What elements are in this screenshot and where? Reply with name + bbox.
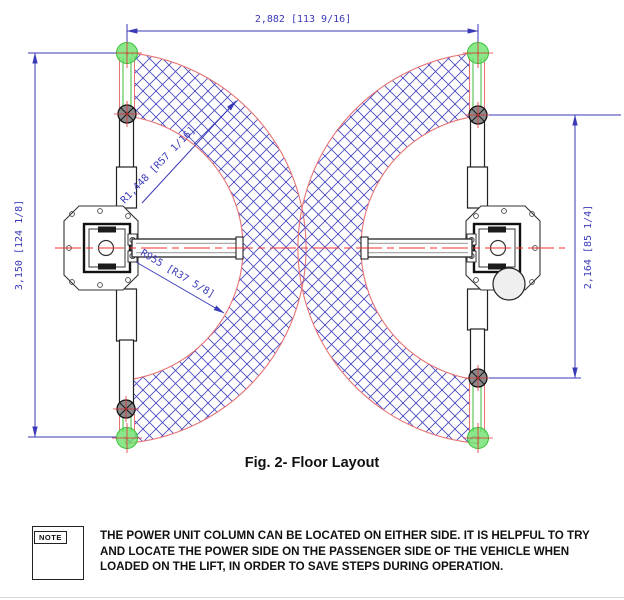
note-section: NOTE THE POWER UNIT COLUMN CAN BE LOCATE… — [32, 526, 607, 580]
dimension-left-height-label: 3,150 [124 1/8] — [14, 200, 25, 290]
right-column-assembly — [466, 206, 540, 300]
dimension-top-width — [127, 24, 478, 42]
page-divider — [0, 597, 624, 598]
power-unit — [493, 268, 525, 300]
dimension-top-width-label: 2,882 [113 9/16] — [255, 14, 351, 25]
note-box-label: NOTE — [34, 531, 67, 544]
note-line-1: THE POWER UNIT COLUMN CAN BE LOCATED ON … — [100, 528, 590, 544]
note-box: NOTE — [32, 526, 84, 580]
note-text: THE POWER UNIT COLUMN CAN BE LOCATED ON … — [100, 526, 590, 575]
figure-caption: Fig. 2- Floor Layout — [0, 455, 624, 471]
page: 2,882 [113 9/16] 3,150 [124 1/8] 2,164 [… — [0, 0, 624, 600]
dimension-right-height-label: 2,164 [85 1/4] — [583, 205, 594, 289]
technical-drawing-svg: 2,882 [113 9/16] 3,150 [124 1/8] 2,164 [… — [0, 0, 624, 510]
note-line-3: LOADED ON THE LIFT, IN ORDER TO SAVE STE… — [100, 559, 590, 575]
note-line-2: AND LOCATE THE POWER SIDE ON THE PASSENG… — [100, 544, 590, 560]
